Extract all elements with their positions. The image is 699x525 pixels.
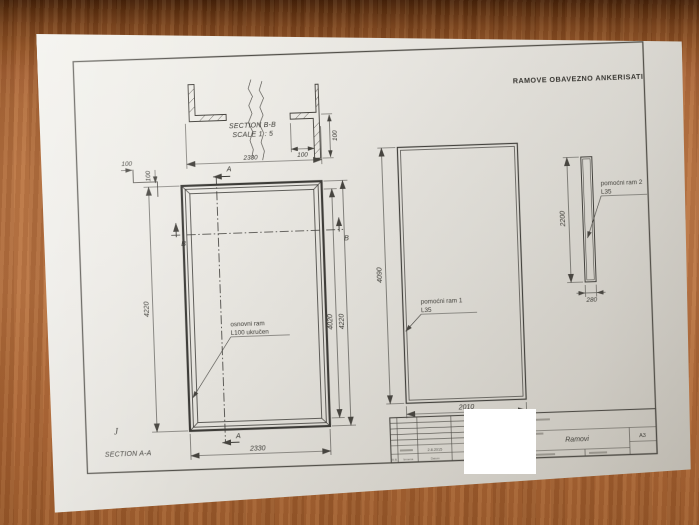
dim-4090: 4090 — [376, 267, 384, 283]
title-block-date: 2.8.2015 — [427, 448, 442, 453]
aux-frame-2-label-2: L35 — [601, 188, 612, 195]
title-block-col-datum: Datum — [431, 456, 440, 460]
anchor-note: RAMOVE OBAVEZNO ANKERISATI — [513, 72, 644, 86]
dim-100-leg: 100 — [297, 152, 308, 159]
section-bb-title: SECTION B-B — [229, 122, 276, 131]
title-block-col-rb: R.B. — [392, 458, 398, 462]
title-block-title: Ramovi — [565, 436, 589, 444]
marker-b-left: B — [181, 239, 186, 248]
dim-2330-bottom: 2330 — [249, 445, 266, 453]
drawing-border — [73, 42, 657, 474]
desk-surface: RAMOVE OBAVEZNO ANKERISATI — [0, 0, 699, 525]
aux-frame-2-view — [563, 155, 651, 298]
paper-sheet: RAMOVE OBAVEZNO ANKERISATI — [36, 7, 699, 519]
technical-drawing: RAMOVE OBAVEZNO ANKERISATI — [36, 7, 699, 519]
dim-4220-right: 4220 — [339, 313, 347, 329]
main-frame-view — [143, 171, 357, 461]
corner-detail — [121, 169, 158, 198]
aux-frame-1-label-1: pomoćni ram 1 — [421, 297, 463, 305]
marker-b-right: B — [344, 233, 349, 242]
main-frame-label-1: osnovni ram — [230, 320, 265, 328]
aux-frame-1-view — [377, 143, 526, 419]
title-block-col-izmena: Izmena — [403, 457, 413, 461]
dim-2200: 2200 — [560, 211, 568, 228]
section-bb-scale: SCALE 1 : 5 — [232, 131, 273, 139]
corner-dim-v: 100 — [145, 170, 152, 181]
marker-a-bottom: A — [235, 431, 241, 440]
main-frame-label-2: L100 ukručen — [231, 329, 270, 337]
section-aa-label: SECTION A-A — [105, 450, 152, 459]
dim-4020-right: 4020 — [327, 314, 335, 330]
dim-4220-left: 4220 — [144, 301, 152, 317]
marker-a-top: A — [225, 164, 231, 173]
aux-frame-2-label-1: pomoćni ram 2 — [601, 179, 643, 187]
dim-2330-top: 2330 — [242, 154, 258, 162]
dim-100-flange: 100 — [332, 130, 339, 141]
corner-dim-h: 100 — [121, 161, 132, 168]
dim-280: 280 — [585, 297, 597, 304]
aux-frame-1-label-2: L35 — [421, 307, 432, 314]
redaction-box — [464, 409, 536, 474]
corner-mark-j: J — [114, 426, 119, 436]
title-block-format: A3 — [639, 433, 646, 439]
